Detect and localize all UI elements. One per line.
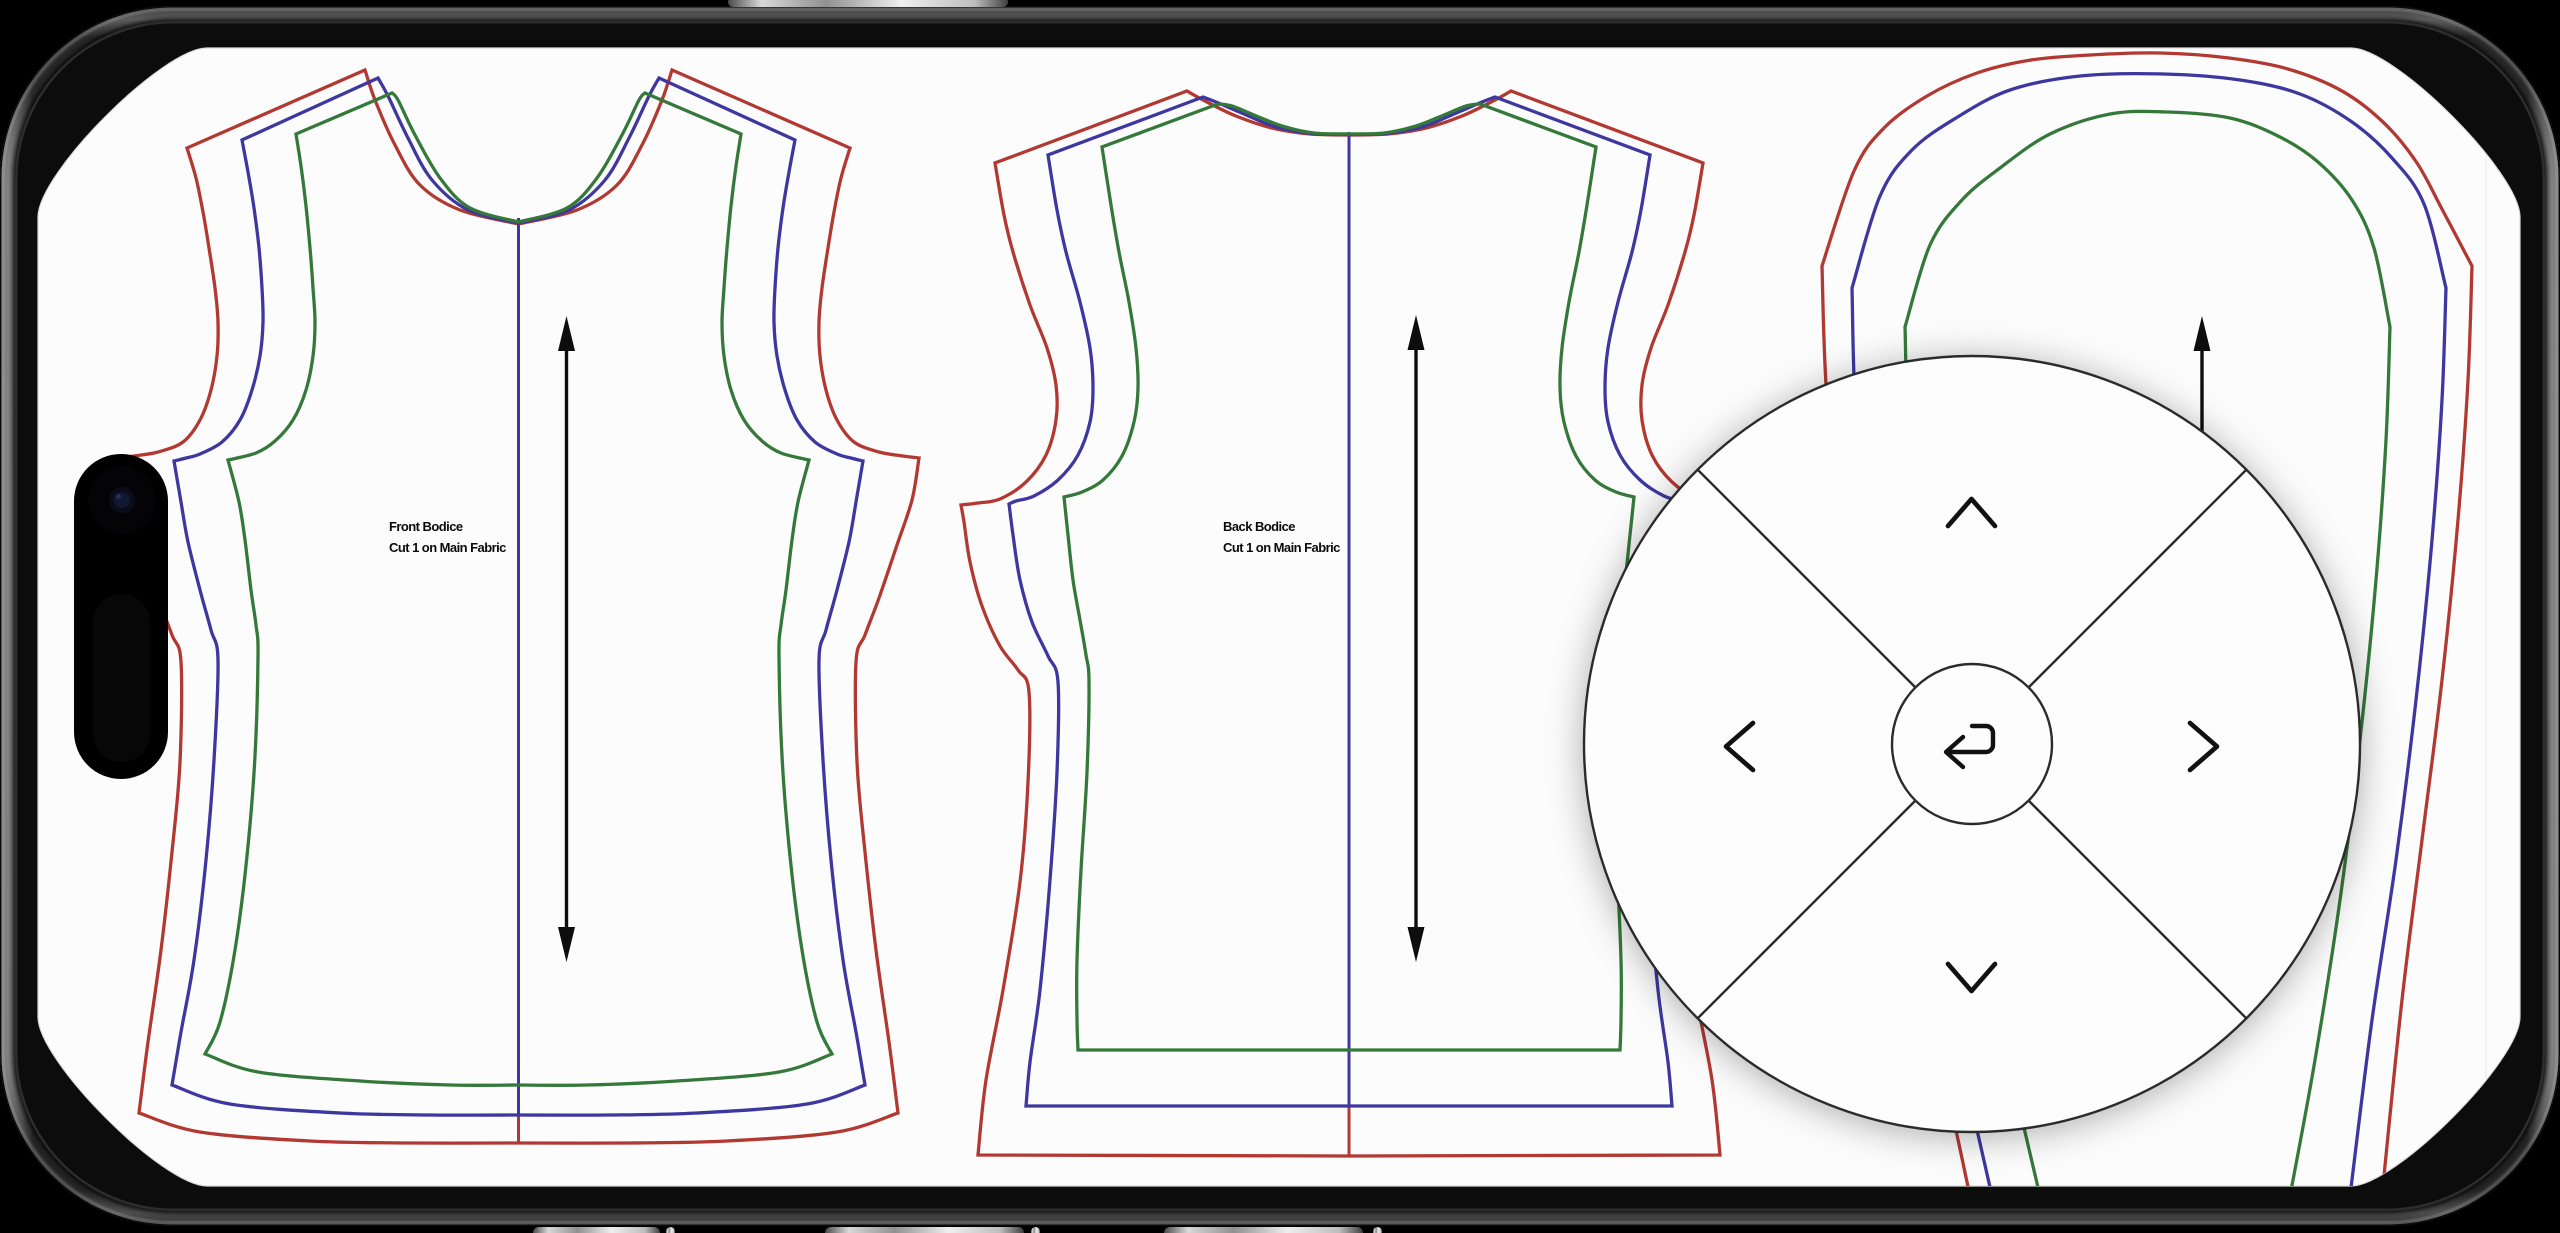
svg-text:Back Bodice: Back Bodice [1223, 519, 1295, 534]
svg-text:Cut 1 on Main Fabric: Cut 1 on Main Fabric [1223, 540, 1340, 555]
svg-text:Cut 1 on Main Fabric: Cut 1 on Main Fabric [389, 540, 506, 555]
svg-text:Front Bodice: Front Bodice [389, 519, 463, 534]
